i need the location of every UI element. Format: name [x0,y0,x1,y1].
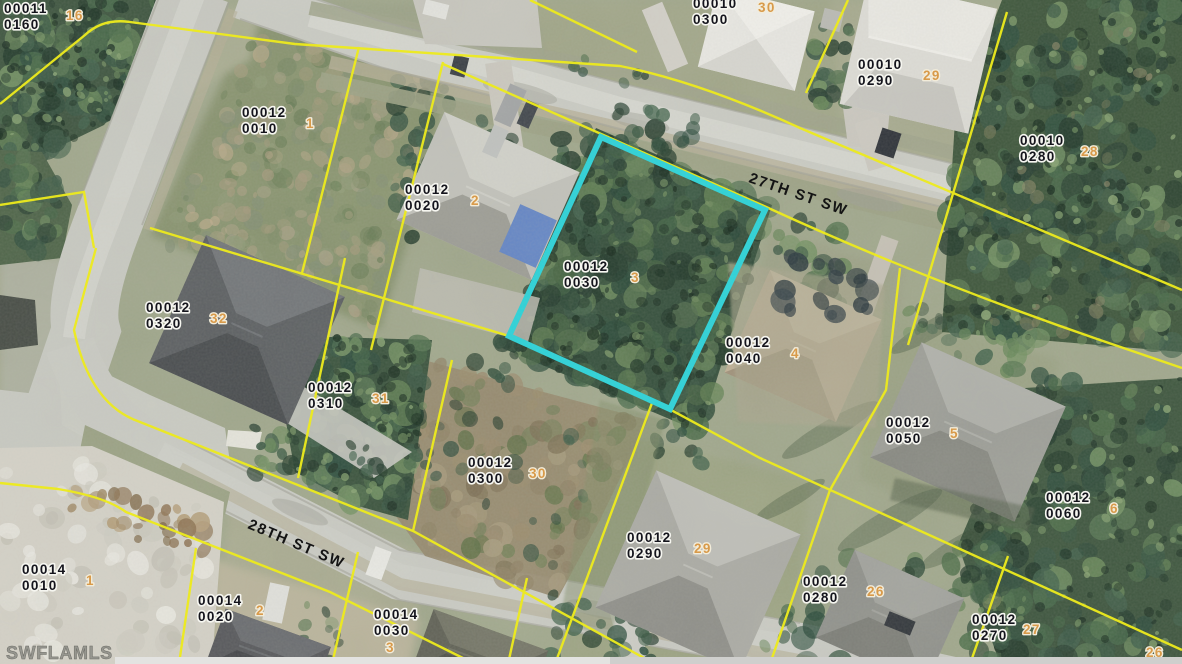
svg-text:00012: 00012 [726,335,771,350]
svg-text:00012: 00012 [564,259,609,274]
svg-text:0020: 0020 [198,609,234,624]
svg-text:0040: 0040 [726,351,762,366]
svg-text:00012: 00012 [972,612,1017,627]
svg-text:00010: 00010 [693,0,738,11]
svg-text:0030: 0030 [564,275,600,290]
svg-text:00012: 00012 [627,530,672,545]
svg-text:0160: 0160 [4,17,40,32]
svg-text:3: 3 [631,270,640,285]
svg-text:00010: 00010 [1020,133,1065,148]
svg-text:0300: 0300 [693,12,729,27]
svg-text:6: 6 [1110,501,1119,516]
svg-text:16: 16 [66,8,84,23]
svg-text:32: 32 [210,311,228,326]
svg-text:SWFLAMLS: SWFLAMLS [6,643,113,663]
svg-text:00012: 00012 [146,300,191,315]
svg-text:0060: 0060 [1046,506,1082,521]
svg-text:00012: 00012 [886,415,931,430]
svg-text:00014: 00014 [374,607,419,622]
svg-text:4: 4 [791,346,800,361]
svg-text:00012: 00012 [468,455,513,470]
svg-text:27: 27 [1023,622,1041,637]
svg-text:0320: 0320 [146,316,182,331]
svg-text:0310: 0310 [308,396,344,411]
svg-text:0280: 0280 [1020,149,1056,164]
svg-text:00011: 00011 [4,1,48,16]
svg-text:28: 28 [1081,144,1099,159]
svg-text:00012: 00012 [242,105,287,120]
svg-text:0290: 0290 [627,546,663,561]
svg-text:30: 30 [529,466,547,481]
svg-text:0030: 0030 [374,623,410,638]
svg-text:00012: 00012 [308,380,353,395]
svg-text:0290: 0290 [858,73,894,88]
svg-text:29: 29 [694,541,712,556]
svg-text:29: 29 [923,68,941,83]
svg-text:00010: 00010 [858,57,903,72]
svg-text:0020: 0020 [405,198,441,213]
svg-text:30: 30 [758,0,776,15]
svg-text:00012: 00012 [803,574,848,589]
svg-text:1: 1 [306,116,315,131]
svg-text:0300: 0300 [468,471,504,486]
svg-text:00014: 00014 [22,562,67,577]
svg-text:0010: 0010 [242,121,278,136]
svg-text:3: 3 [386,640,395,655]
svg-text:2: 2 [471,193,480,208]
svg-text:0050: 0050 [886,431,922,446]
svg-text:0280: 0280 [803,590,839,605]
svg-text:00014: 00014 [198,593,243,608]
svg-text:5: 5 [950,426,959,441]
svg-text:26: 26 [867,584,885,599]
svg-text:2: 2 [256,603,265,618]
svg-text:1: 1 [86,573,95,588]
svg-text:31: 31 [372,391,390,406]
svg-text:00012: 00012 [405,182,450,197]
svg-text:0010: 0010 [22,578,58,593]
svg-text:00012: 00012 [1046,490,1091,505]
svg-text:0270: 0270 [972,628,1008,643]
